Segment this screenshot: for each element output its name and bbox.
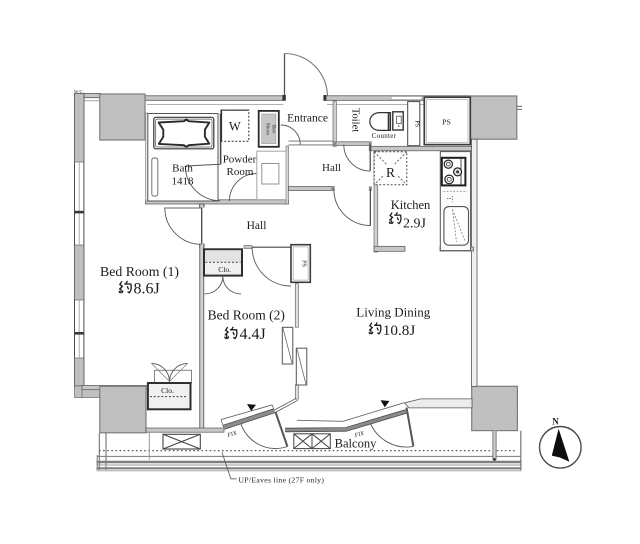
svg-text:UP/Eaves line (27F only): UP/Eaves line (27F only) bbox=[239, 475, 325, 484]
svg-text:Clo.: Clo. bbox=[161, 386, 174, 395]
svg-text:Entrance: Entrance bbox=[287, 113, 328, 125]
svg-text:8.6J: 8.6J bbox=[134, 281, 160, 298]
svg-text:Balcony: Balcony bbox=[335, 437, 377, 451]
svg-text:Clo.: Clo. bbox=[218, 265, 231, 274]
svg-text:Bed Room (2): Bed Room (2) bbox=[208, 307, 285, 322]
svg-text:Hall: Hall bbox=[322, 162, 341, 174]
svg-text:PS: PS bbox=[442, 118, 451, 127]
svg-text:Shoes: Shoes bbox=[264, 123, 269, 135]
svg-text:Counter: Counter bbox=[372, 132, 397, 140]
svg-text:4.4J: 4.4J bbox=[240, 326, 266, 343]
svg-text:Powder: Powder bbox=[223, 154, 257, 166]
svg-text:Bath: Bath bbox=[172, 163, 193, 175]
svg-text:10.8J: 10.8J bbox=[383, 322, 416, 339]
svg-text:R: R bbox=[386, 165, 395, 180]
svg-text:2.9J: 2.9J bbox=[403, 216, 427, 231]
svg-text:1418: 1418 bbox=[172, 176, 195, 188]
svg-text:PS: PS bbox=[414, 120, 420, 127]
svg-text:Hall: Hall bbox=[247, 220, 267, 232]
svg-text:Bed Room (1): Bed Room (1) bbox=[100, 264, 179, 280]
svg-text:Box: Box bbox=[271, 125, 276, 134]
svg-text:W: W bbox=[229, 119, 241, 133]
svg-text:Kitchen: Kitchen bbox=[391, 198, 431, 212]
svg-text:Room: Room bbox=[227, 166, 254, 178]
svg-text:N: N bbox=[552, 417, 559, 427]
svg-text:Toilet: Toilet bbox=[350, 108, 361, 132]
svg-text:PS: PS bbox=[301, 260, 308, 267]
svg-text:Living Dining: Living Dining bbox=[356, 304, 431, 319]
